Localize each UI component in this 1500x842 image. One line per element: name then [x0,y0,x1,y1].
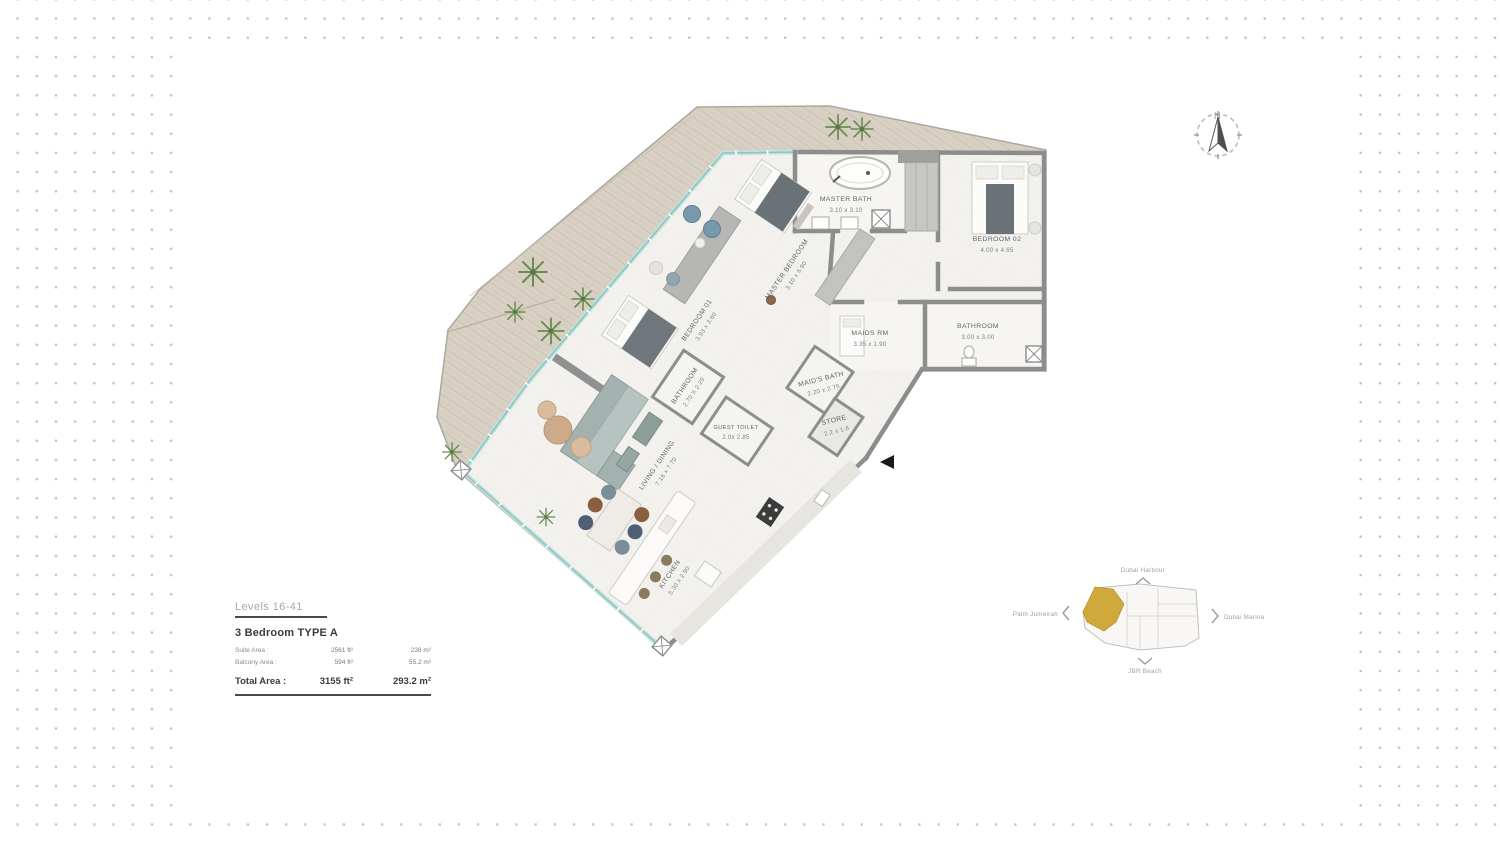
chevron-up-icon [1136,578,1150,584]
chevron-right-icon [1212,609,1218,623]
dims-bathroom: 3.00 x 3.00 [962,335,995,341]
unit-type-title: 3 Bedroom TYPE A [235,627,431,639]
label-master-bath: MASTER BATH [820,196,872,203]
dims-bedroom-02: 4.00 x 4.65 [981,248,1014,254]
label-bathroom: BATHROOM [957,323,999,330]
area-table: Suite Area : 2561 ft² 238 m² Balcony Are… [235,645,431,670]
floor-plan-svg: MASTER BATH 3.10 x 3.10 BEDROOM 02 4.00 … [0,0,1500,842]
north-arrow-icon [1209,117,1227,151]
keyplan: Dubai Harbour Palm Jumeirah Dubai Marina… [1013,567,1265,675]
label-bedroom-02: BEDROOM 02 [973,236,1022,243]
total-area-m: 293.2 m² [353,675,431,689]
suite-area-m: 238 m² [353,645,431,657]
dims-master-bath: 3.10 x 3.10 [830,208,863,214]
balcony-area-m: 55.2 m² [353,657,431,669]
floorplan-page: MASTER BATH 3.10 x 3.10 BEDROOM 02 4.00 … [0,0,1500,842]
keyplan-label-right: Dubai Marina [1224,614,1265,621]
entry-arrow-icon [880,455,894,469]
balcony-area-ft: 594 ft² [313,657,353,669]
suite-area-label: Suite Area : [235,645,313,657]
total-area-row: Total Area : 3155 ft² 293.2 m² [235,673,431,689]
compass: N [1194,111,1242,159]
unit-info-box: Levels 16-41 3 Bedroom TYPE A Suite Area… [235,601,431,696]
total-area-ft: 3155 ft² [313,675,353,689]
suite-area-ft: 2561 ft² [313,645,353,657]
chevron-left-icon [1063,606,1069,620]
keyplan-label-top: Dubai Harbour [1121,567,1165,574]
dims-maids-rm: 3.35 x 1.90 [854,342,887,348]
total-area-label: Total Area : [235,675,313,689]
chevron-down-icon [1138,658,1152,664]
dims-guest-toilet: 2.0x 2.85 [722,435,750,441]
info-box-bottom-rule [235,694,431,696]
levels-underline [235,616,327,618]
balcony-area-label: Balcony Area : [235,657,313,669]
label-maids-rm: MAIDS RM [851,330,888,337]
label-guest-toilet: GUEST TOILET [714,425,759,431]
bathtub-icon [830,157,890,189]
levels-label: Levels 16-41 [235,601,431,613]
keyplan-label-bottom: JBR Beach [1128,668,1162,675]
keyplan-label-left: Palm Jumeirah [1013,611,1058,618]
